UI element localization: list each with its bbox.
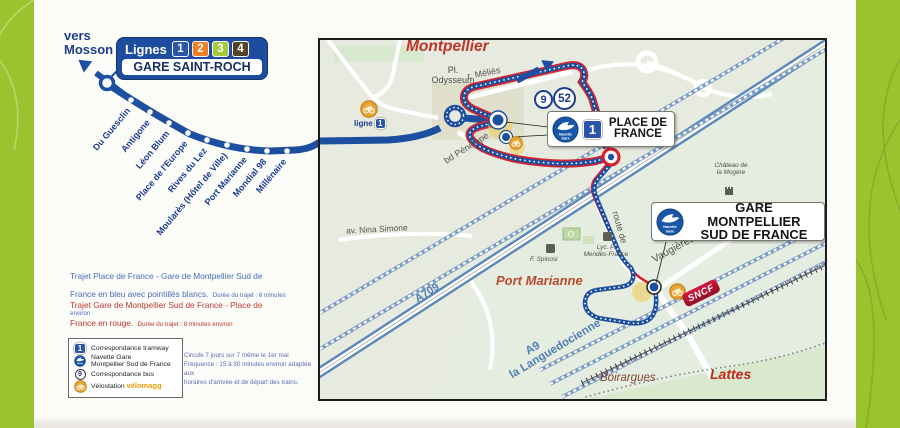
direction-word-1: vers: [64, 29, 113, 43]
legend-item-bus: 9 Correspondance bus: [73, 369, 178, 380]
legend-item-velomagg: Vélostation vélomagg: [73, 380, 178, 393]
ligne1-marker: ligne 1: [354, 118, 386, 129]
legend-velomagg-label: Vélostation vélomagg: [91, 382, 162, 390]
odysseum-stop-main: [489, 111, 507, 129]
pdf-line2: FRANCE: [606, 129, 670, 141]
red-route-description: Trajet Gare de Montpellier Sud de France…: [70, 295, 290, 331]
chateau-line2: la Mogère: [702, 169, 760, 176]
legend-tram-badge: 1: [74, 343, 86, 354]
city-map: Montpellier Pl. Odysseum r. Méliès bd Pé…: [318, 38, 827, 401]
school-spinosi-label: F. Spinosi: [530, 256, 558, 263]
district-port-marianne: Port Marianne: [496, 273, 583, 288]
legend-tramway-label: Correspondance tramway: [91, 345, 169, 352]
chateau-mogere-label: Château de la Mogère: [702, 162, 760, 176]
place-de-france-callout: Navette Gare 1 PLACE DE FRANCE: [547, 111, 675, 147]
transit-map-page: vers Mosson Lignes 1 2 3 4 GARE SAINT-RO…: [0, 0, 900, 428]
legend-box: 1 Correspondance tramway Navette Navette…: [68, 338, 183, 398]
ligne1-badge: 1: [375, 118, 386, 129]
chateau-line1: Château de: [702, 162, 760, 169]
navette-gare-icon: Navette: [74, 355, 86, 367]
chateau-icon: [724, 186, 734, 196]
freq-line2: Fréquence : 15 à 30 minutes environ adap…: [184, 360, 320, 378]
lycee-icon: [603, 232, 612, 241]
legend-item-navette: Navette Navette Gare Montpellier Sud de …: [73, 354, 178, 369]
navette-gare-icon: Navette Gare: [656, 208, 684, 236]
navette-icon-text2: Gare: [561, 136, 569, 140]
frequency-note: Circule 7 jours sur 7 même le 1er mai Fr…: [184, 351, 320, 387]
velomagg-brand: vélomagg: [127, 381, 162, 390]
navette-icon-text2: Gare: [666, 229, 674, 233]
velostation-word: Vélostation: [91, 383, 125, 390]
legend-navette-label: Navette Gare Montpellier Sud de France: [91, 354, 171, 369]
velomagg-icon: [74, 380, 87, 393]
direction-word-2: Mosson: [64, 43, 113, 57]
pdf-name: PLACE DE FRANCE: [606, 118, 670, 141]
pdf-tram1-badge: 1: [583, 120, 602, 139]
legend-item-tramway: 1 Correspondance tramway: [73, 343, 178, 354]
gare-sud-name: GARE MONTPELLIER SUD DE FRANCE: [688, 201, 820, 242]
velomagg-station-icon-odysseum-west: [360, 100, 378, 118]
gare-sud-line2: SUD DE FRANCE: [688, 228, 820, 242]
gare-sud-line1: GARE MONTPELLIER: [688, 201, 820, 228]
gare-saint-roch-stop-ring: [101, 77, 114, 90]
navette-gare-icon: Navette Gare: [552, 116, 579, 143]
lignes-label: Lignes: [125, 42, 167, 57]
gare-sud-terminal-stop: [647, 280, 661, 294]
lycee-line2: Mendès-France: [578, 251, 634, 258]
legend-bus-badge: 9: [75, 369, 86, 380]
red-route-duration: Durée du trajet : 8 minutes environ: [138, 321, 233, 328]
direction-label-mosson: vers Mosson: [64, 29, 113, 57]
bus-line-9-badge: 9: [534, 90, 553, 109]
gare-saint-roch-callout: Lignes 1 2 3 4 GARE SAINT-ROCH: [116, 37, 268, 80]
legend-navette-line2: Montpellier Sud de France: [91, 361, 171, 368]
district-lattes: Lattes: [710, 366, 751, 382]
city-label-montpellier: Montpellier: [406, 38, 489, 56]
freq-line3: horaires d'arrivée et de départ des trai…: [184, 378, 320, 387]
ligne1-word: ligne: [354, 119, 373, 128]
place-de-france-roundabout: [603, 149, 619, 165]
gare-sud-callout: Navette Gare GARE MONTPELLIER SUD DE FRA…: [651, 202, 825, 241]
bus-line-52-badge: 52: [553, 87, 576, 110]
lines-row: Lignes 1 2 3 4: [122, 41, 262, 57]
lycee-label: Lyc. P. Mendès-France: [578, 244, 634, 258]
velomagg-station-icon-penelope: [509, 136, 523, 150]
district-boirargues: Boirargues: [600, 372, 656, 384]
terminus-name: GARE SAINT-ROCH: [122, 59, 262, 75]
line2-badge: 2: [192, 41, 209, 57]
line1-badge: 1: [172, 41, 189, 57]
school-spinosi-icon: [546, 244, 555, 253]
line3-badge: 3: [212, 41, 229, 57]
freq-line1: Circule 7 jours sur 7 même le 1er mai: [184, 351, 320, 360]
legend-bus-label: Correspondance bus: [91, 371, 154, 378]
legend-navette-line1: Navette Gare: [91, 354, 171, 361]
lycee-line1: Lyc. P.: [578, 244, 634, 251]
line4-badge: 4: [232, 41, 249, 57]
